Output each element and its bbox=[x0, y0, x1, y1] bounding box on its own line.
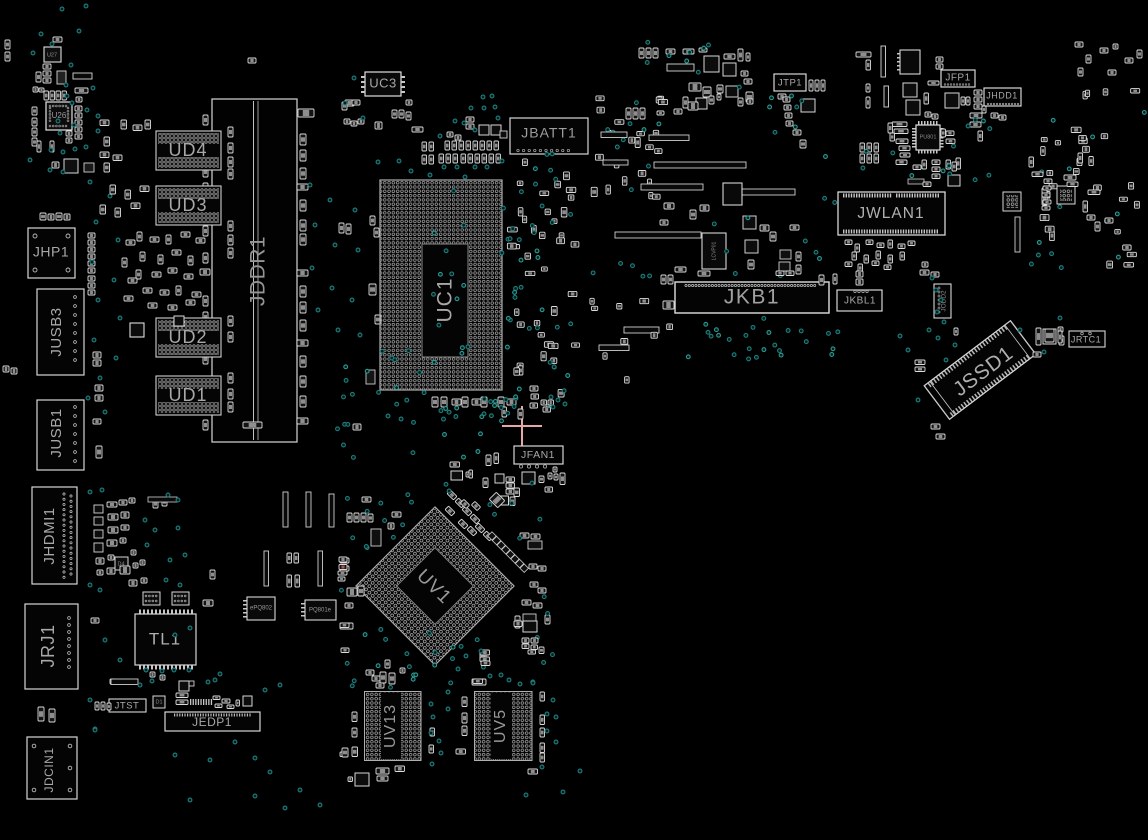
svg-text:JUSB3: JUSB3 bbox=[48, 307, 65, 356]
svg-text:JWLAN1: JWLAN1 bbox=[857, 205, 924, 222]
svg-text:JFP1: JFP1 bbox=[945, 73, 970, 84]
svg-text:JKBL1: JKBL1 bbox=[844, 296, 876, 307]
svg-text:U27: U27 bbox=[47, 52, 57, 58]
svg-text:UD1: UD1 bbox=[168, 385, 207, 405]
svg-text:UV5: UV5 bbox=[492, 709, 509, 743]
svg-text:JKB1: JKB1 bbox=[724, 286, 780, 309]
svg-text:JTP1: JTP1 bbox=[778, 78, 802, 89]
svg-text:PQ801e: PQ801e bbox=[309, 608, 332, 614]
svg-text:JRTC1: JRTC1 bbox=[1071, 334, 1101, 344]
svg-text:JFAN1: JFAN1 bbox=[521, 449, 555, 461]
svg-text:ePQ802: ePQ802 bbox=[250, 606, 273, 612]
svg-text:JEDP1: JEDP1 bbox=[192, 715, 232, 729]
svg-text:JHDMI1: JHDMI1 bbox=[41, 507, 58, 564]
svg-text:UD2: UD2 bbox=[168, 327, 207, 347]
svg-text:JBATT1: JBATT1 bbox=[521, 125, 577, 141]
svg-text:UD4: UD4 bbox=[168, 140, 207, 160]
svg-text:TL1: TL1 bbox=[149, 629, 181, 648]
svg-text:JHP1: JHP1 bbox=[33, 244, 69, 260]
svg-text:JRJ1: JRJ1 bbox=[38, 624, 58, 667]
svg-text:UC3: UC3 bbox=[369, 75, 397, 90]
svg-text:UV13: UV13 bbox=[382, 704, 399, 748]
svg-text:U26: U26 bbox=[52, 111, 67, 120]
svg-text:JUSB1: JUSB1 bbox=[48, 408, 65, 457]
svg-text:JHDD1: JHDD1 bbox=[986, 90, 1018, 100]
svg-text:LCVP01: LCVP01 bbox=[711, 241, 717, 260]
svg-text:JDDR1: JDDR1 bbox=[247, 236, 270, 306]
svg-text:JTST: JTST bbox=[115, 701, 140, 712]
svg-text:UD3: UD3 bbox=[168, 195, 207, 215]
svg-text:JDCIN1: JDCIN1 bbox=[42, 747, 56, 792]
svg-text:UC1: UC1 bbox=[434, 277, 457, 322]
svg-text:PU801: PU801 bbox=[920, 134, 937, 140]
svg-text:D1: D1 bbox=[155, 699, 162, 705]
